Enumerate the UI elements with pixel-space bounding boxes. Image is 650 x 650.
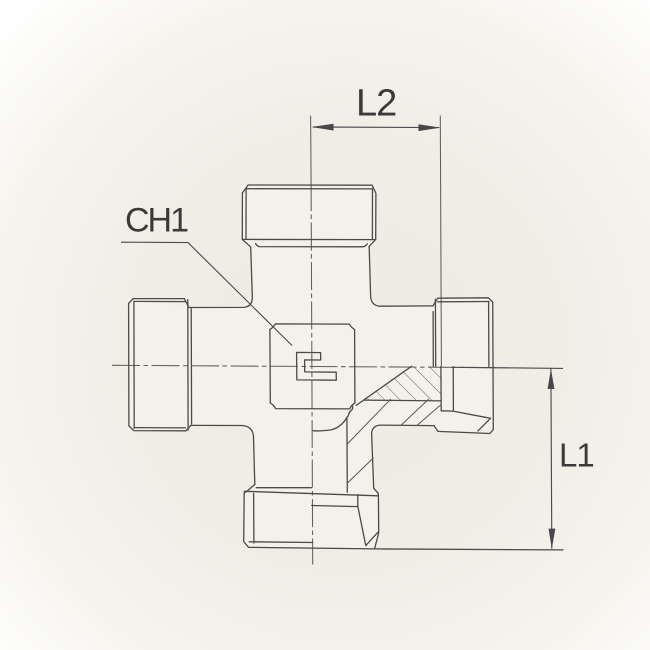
svg-text:L1: L1 (559, 437, 594, 474)
svg-text:L2: L2 (356, 83, 396, 125)
svg-text:CH1: CH1 (125, 202, 188, 240)
